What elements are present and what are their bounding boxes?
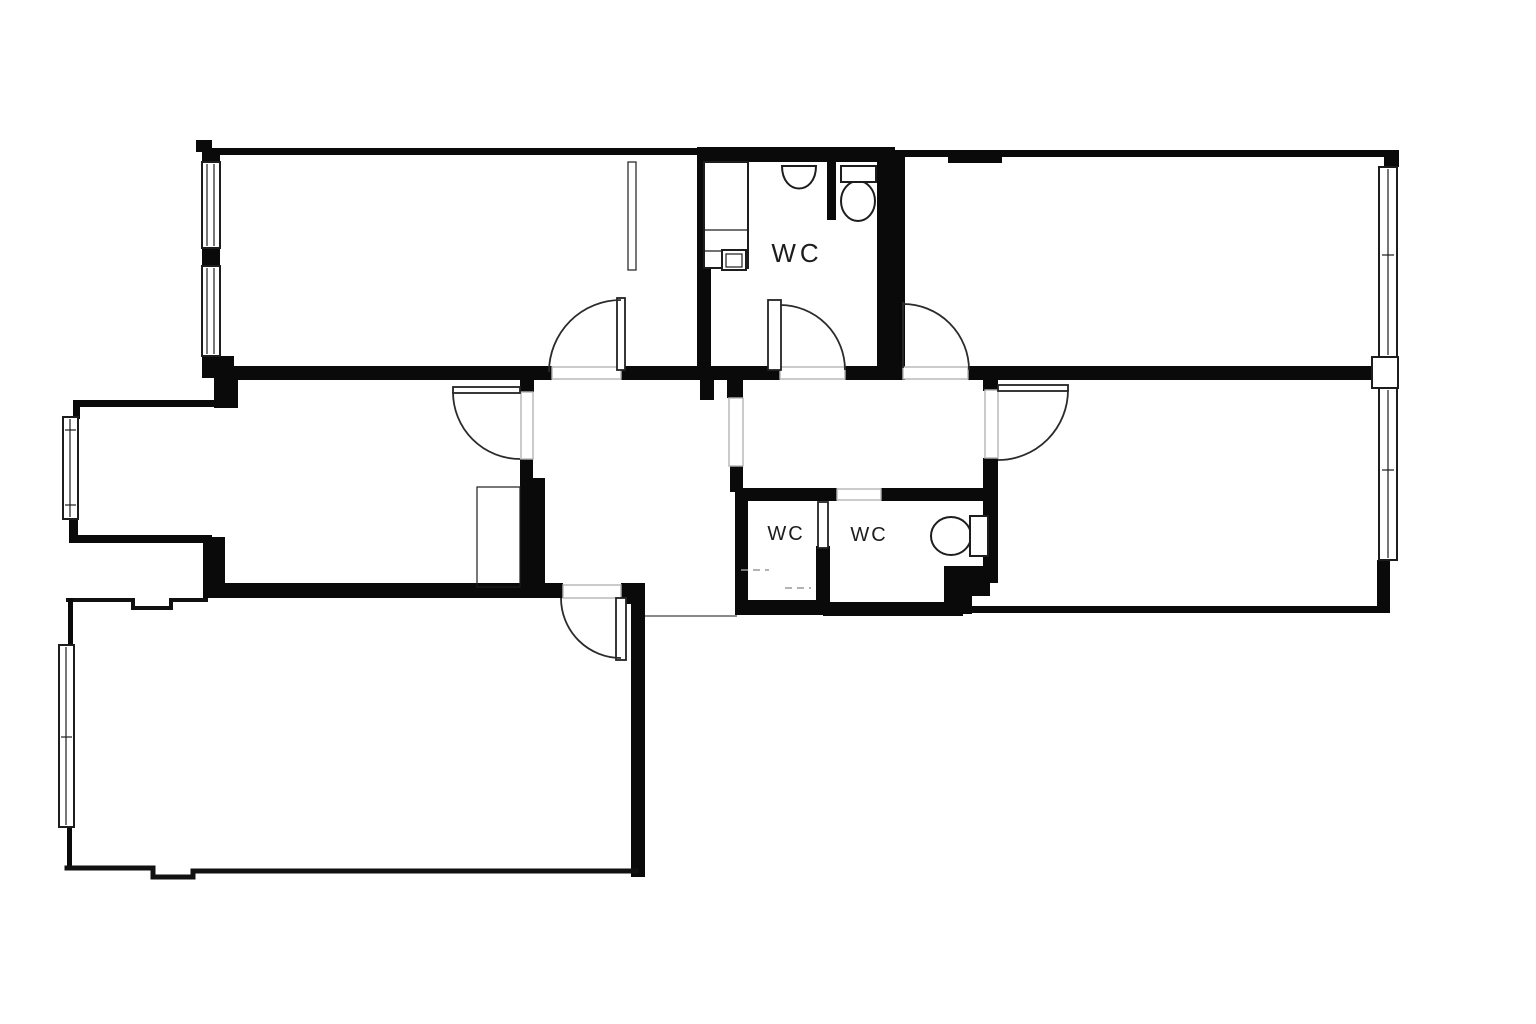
wardrobe-icon [628, 162, 636, 270]
floor-plan-canvas: WC WC WC [0, 0, 1536, 1024]
door-thresholds [521, 367, 998, 598]
toilet-icon-right-wc [931, 516, 988, 556]
door-bottom-left-room [561, 598, 626, 660]
window-middle-left [63, 417, 78, 519]
bottom-room-bottom-wall [67, 868, 636, 877]
hall-walls [203, 372, 743, 604]
label-right-wc: WC [850, 524, 887, 546]
window-top-left-lower [202, 266, 220, 356]
bottom-left-room-walls [67, 590, 737, 877]
window-top-left-upper [202, 162, 220, 248]
bottom-room-top-wall [68, 600, 206, 608]
window-right-lower [1379, 388, 1397, 560]
window-bottom-left [59, 645, 74, 827]
floor-plan-page: WC WC WC [0, 0, 1536, 1024]
sink-icon [782, 166, 816, 189]
door-bottom-right-room [998, 385, 1068, 460]
closet-icon [477, 487, 520, 587]
label-left-wc: WC [767, 523, 804, 545]
door-top-right-room [903, 302, 969, 370]
window-right-upper [1379, 167, 1397, 357]
door-top-wc [768, 300, 845, 370]
washing-machine-icon [722, 250, 746, 270]
door-middle-left-room [453, 387, 520, 459]
window-pier [1372, 357, 1398, 388]
label-top-wc: WC [771, 238, 822, 268]
door-left-wc-leaf [818, 502, 828, 548]
door-top-left-room [549, 298, 625, 372]
toilet-icon-top-wc [841, 166, 876, 221]
